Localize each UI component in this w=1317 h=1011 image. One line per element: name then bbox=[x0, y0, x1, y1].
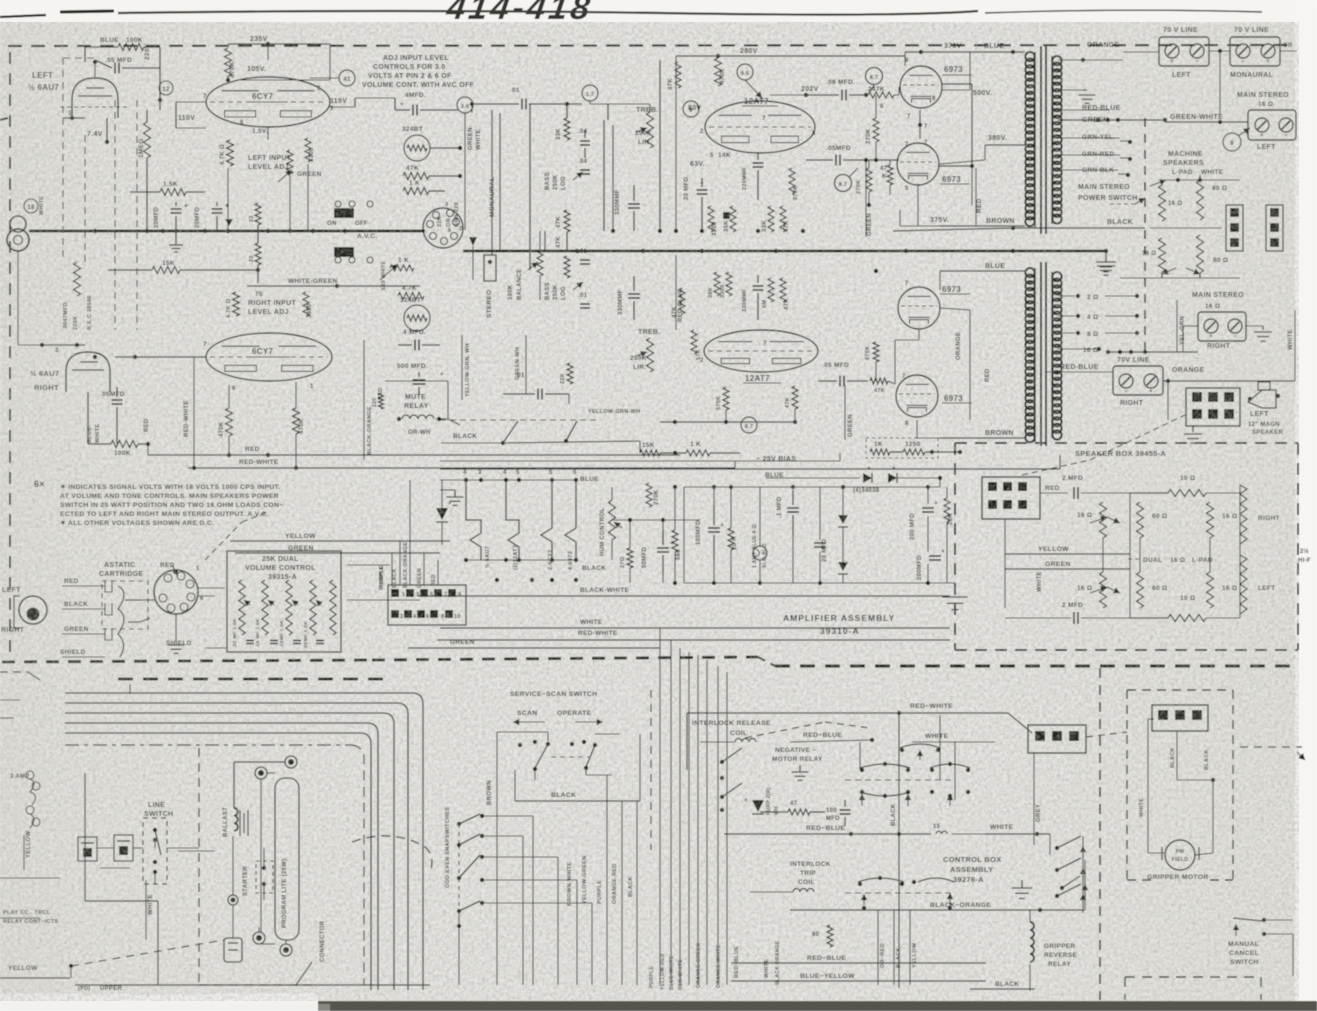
svg-text:2½: 2½ bbox=[1300, 548, 1309, 555]
svg-text:HI-F: HI-F bbox=[1298, 558, 1311, 564]
